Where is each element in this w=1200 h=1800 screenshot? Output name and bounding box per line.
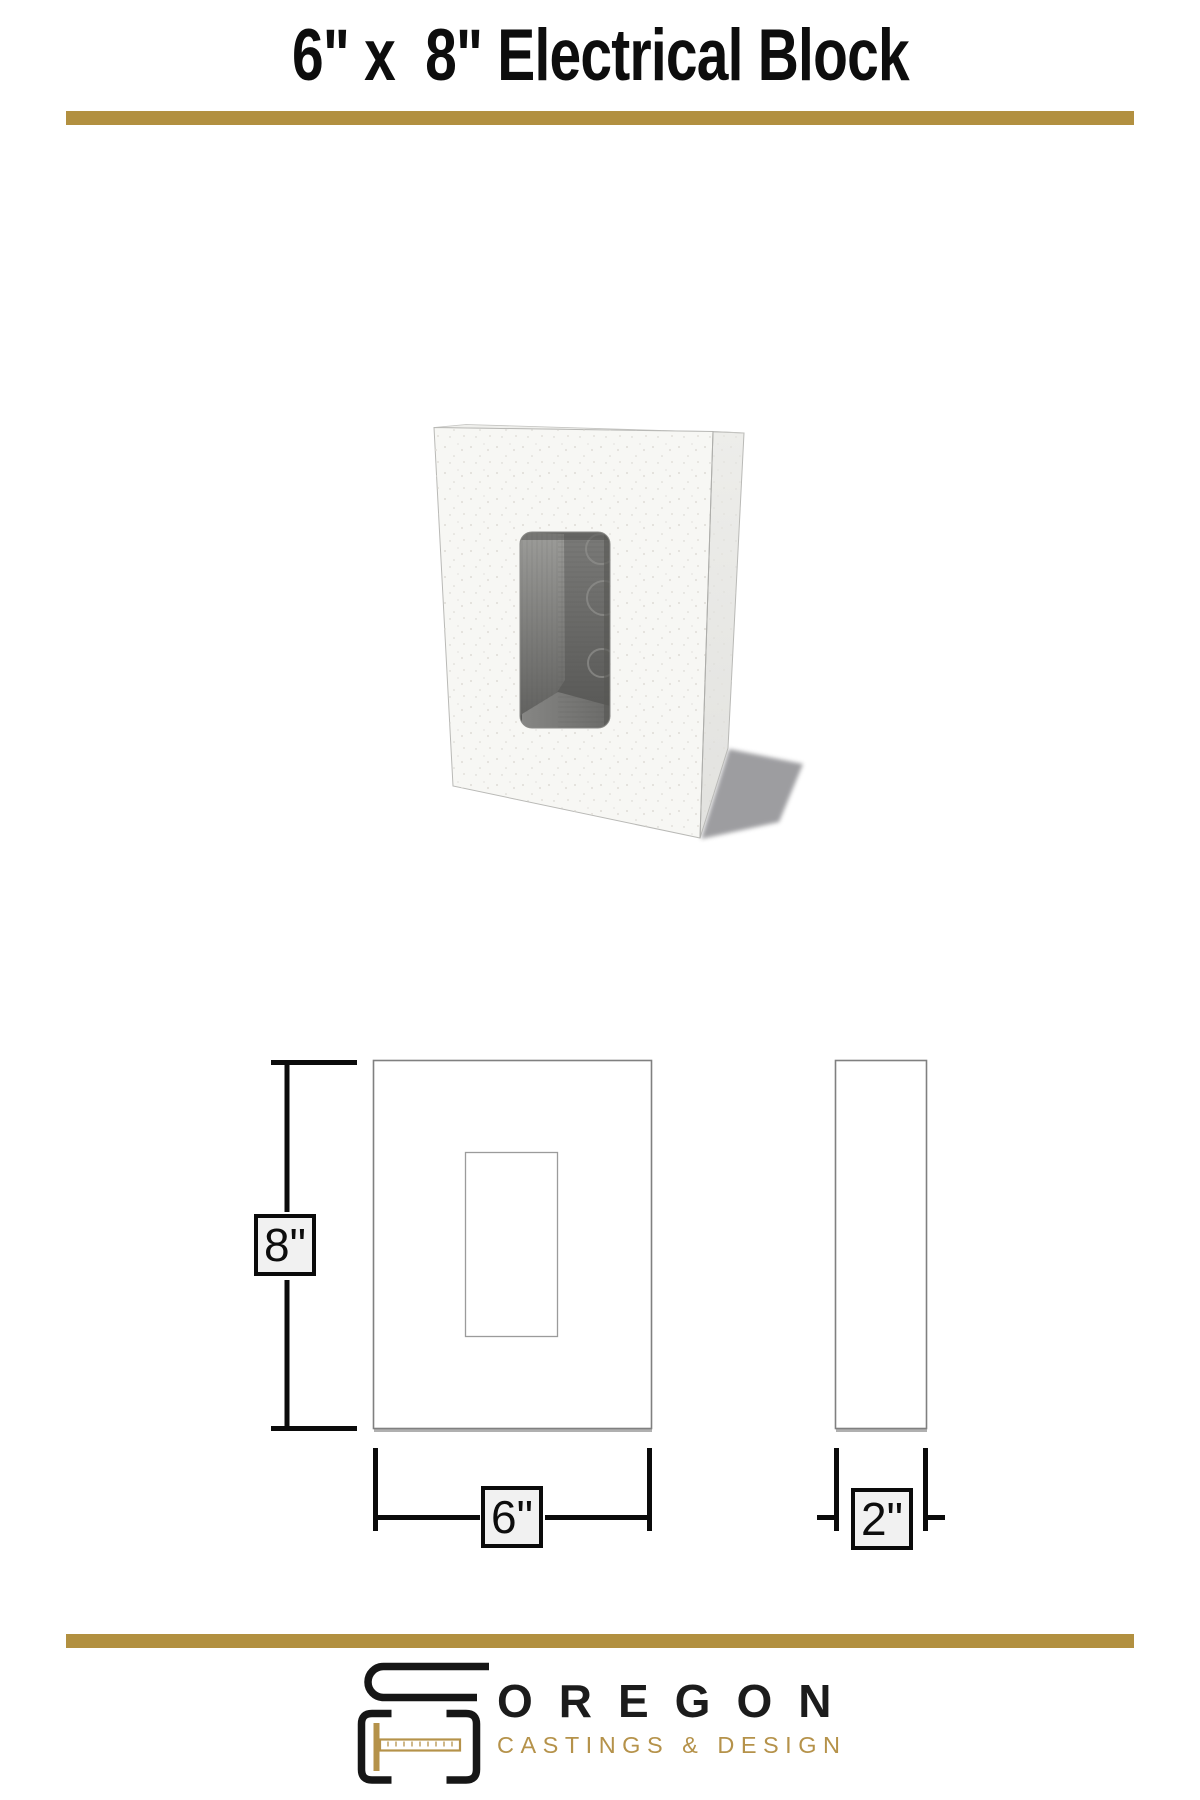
side-view-thickness-label: 2" — [851, 1488, 913, 1550]
front-view-height-label: 8" — [254, 1214, 316, 1276]
logo-top-clamp-shape — [368, 1667, 489, 1698]
technical-drawing — [0, 1040, 1200, 1560]
recess-opening — [520, 532, 621, 728]
oregon-castings-logo-icon — [350, 1655, 498, 1800]
page-title-text: 6" x 8" Electrical Block — [292, 16, 909, 96]
product-3d-render — [420, 415, 820, 850]
logo-ruler-icon — [380, 1740, 460, 1751]
spec-sheet-page: 6" x 8" Electrical Block — [0, 0, 1200, 1800]
brand-tagline: CASTINGS & DESIGN — [497, 1734, 857, 1758]
side-view-outline — [836, 1061, 927, 1429]
front-view-width-label: 6" — [481, 1486, 543, 1548]
brand-footer: OREGON CASTINGS & DESIGN — [0, 1650, 1200, 1800]
top-divider-rule — [66, 111, 1134, 125]
page-title: 6" x 8" Electrical Block — [0, 16, 1200, 96]
bottom-divider-rule — [66, 1634, 1134, 1648]
brand-name: OREGON — [497, 1678, 857, 1724]
brand-wordmark: OREGON CASTINGS & DESIGN — [497, 1678, 857, 1758]
front-view-recess-outline — [466, 1153, 558, 1337]
